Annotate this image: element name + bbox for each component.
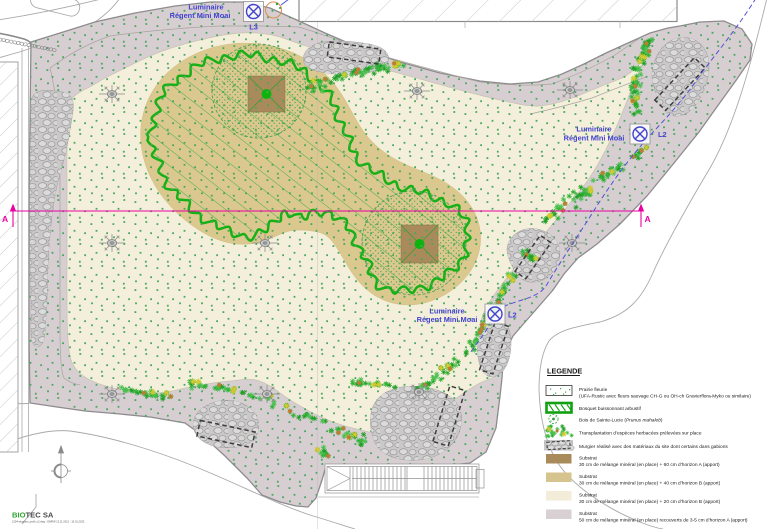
svg-text:Substrat: Substrat bbox=[579, 511, 598, 517]
svg-text:30 cm de mélange minéral (en p: 30 cm de mélange minéral (en place) + 60… bbox=[579, 462, 720, 468]
svg-text:A: A bbox=[645, 214, 651, 224]
svg-text:30 cm de mélange minéral (en p: 30 cm de mélange minéral (en place) + 20… bbox=[579, 499, 721, 505]
svg-text:A: A bbox=[2, 214, 8, 224]
svg-text:L2: L2 bbox=[508, 311, 517, 320]
svg-text:Substrat: Substrat bbox=[579, 474, 598, 480]
svg-text:30 cm de mélange minéral (en p: 30 cm de mélange minéral (en place) + 40… bbox=[579, 481, 721, 487]
svg-text:50 cm de mélange minéral (en p: 50 cm de mélange minéral (en place) reco… bbox=[579, 518, 748, 524]
svg-text:Bosquet buissonnant arbustif: Bosquet buissonnant arbustif bbox=[579, 406, 642, 412]
svg-text:Transplantation d’espèces herb: Transplantation d’espèces herbacées prél… bbox=[579, 431, 702, 437]
svg-text:L2: L2 bbox=[658, 130, 667, 139]
svg-text:L3: L3 bbox=[249, 23, 258, 32]
svg-text:Bois de Sainte-Lucie (Prunus m: Bois de Sainte-Lucie (Prunus mahaleb) bbox=[579, 418, 663, 424]
svg-text:Régent Mini Moai: Régent Mini Moai bbox=[170, 11, 231, 20]
svg-text:Luminaire: Luminaire bbox=[576, 125, 611, 134]
svg-text:LEGENDE: LEGENDE bbox=[547, 367, 582, 376]
svg-text:Régent Mini Moai: Régent Mini Moai bbox=[564, 134, 625, 143]
svg-text:BIOTEC SA: BIOTEC SA bbox=[12, 511, 54, 520]
svg-text:Substrat: Substrat bbox=[579, 456, 598, 462]
svg-text:Prairie fleurie: Prairie fleurie bbox=[579, 387, 608, 393]
svg-text:(UFA-Rustic avec fleurs sauvag: (UFA-Rustic avec fleurs sauvage CH-G ou … bbox=[579, 394, 751, 400]
svg-text:Régent Mini Moai: Régent Mini Moai bbox=[417, 315, 478, 324]
svg-text:Substrat: Substrat bbox=[579, 493, 598, 499]
svg-text:2104-situation_profil_v2.dwg -: 2104-situation_profil_v2.dwg - DMPW 12.1… bbox=[12, 520, 85, 524]
svg-text:Murgier réalisé avec des matér: Murgier réalisé avec des matériaux du si… bbox=[579, 444, 728, 450]
